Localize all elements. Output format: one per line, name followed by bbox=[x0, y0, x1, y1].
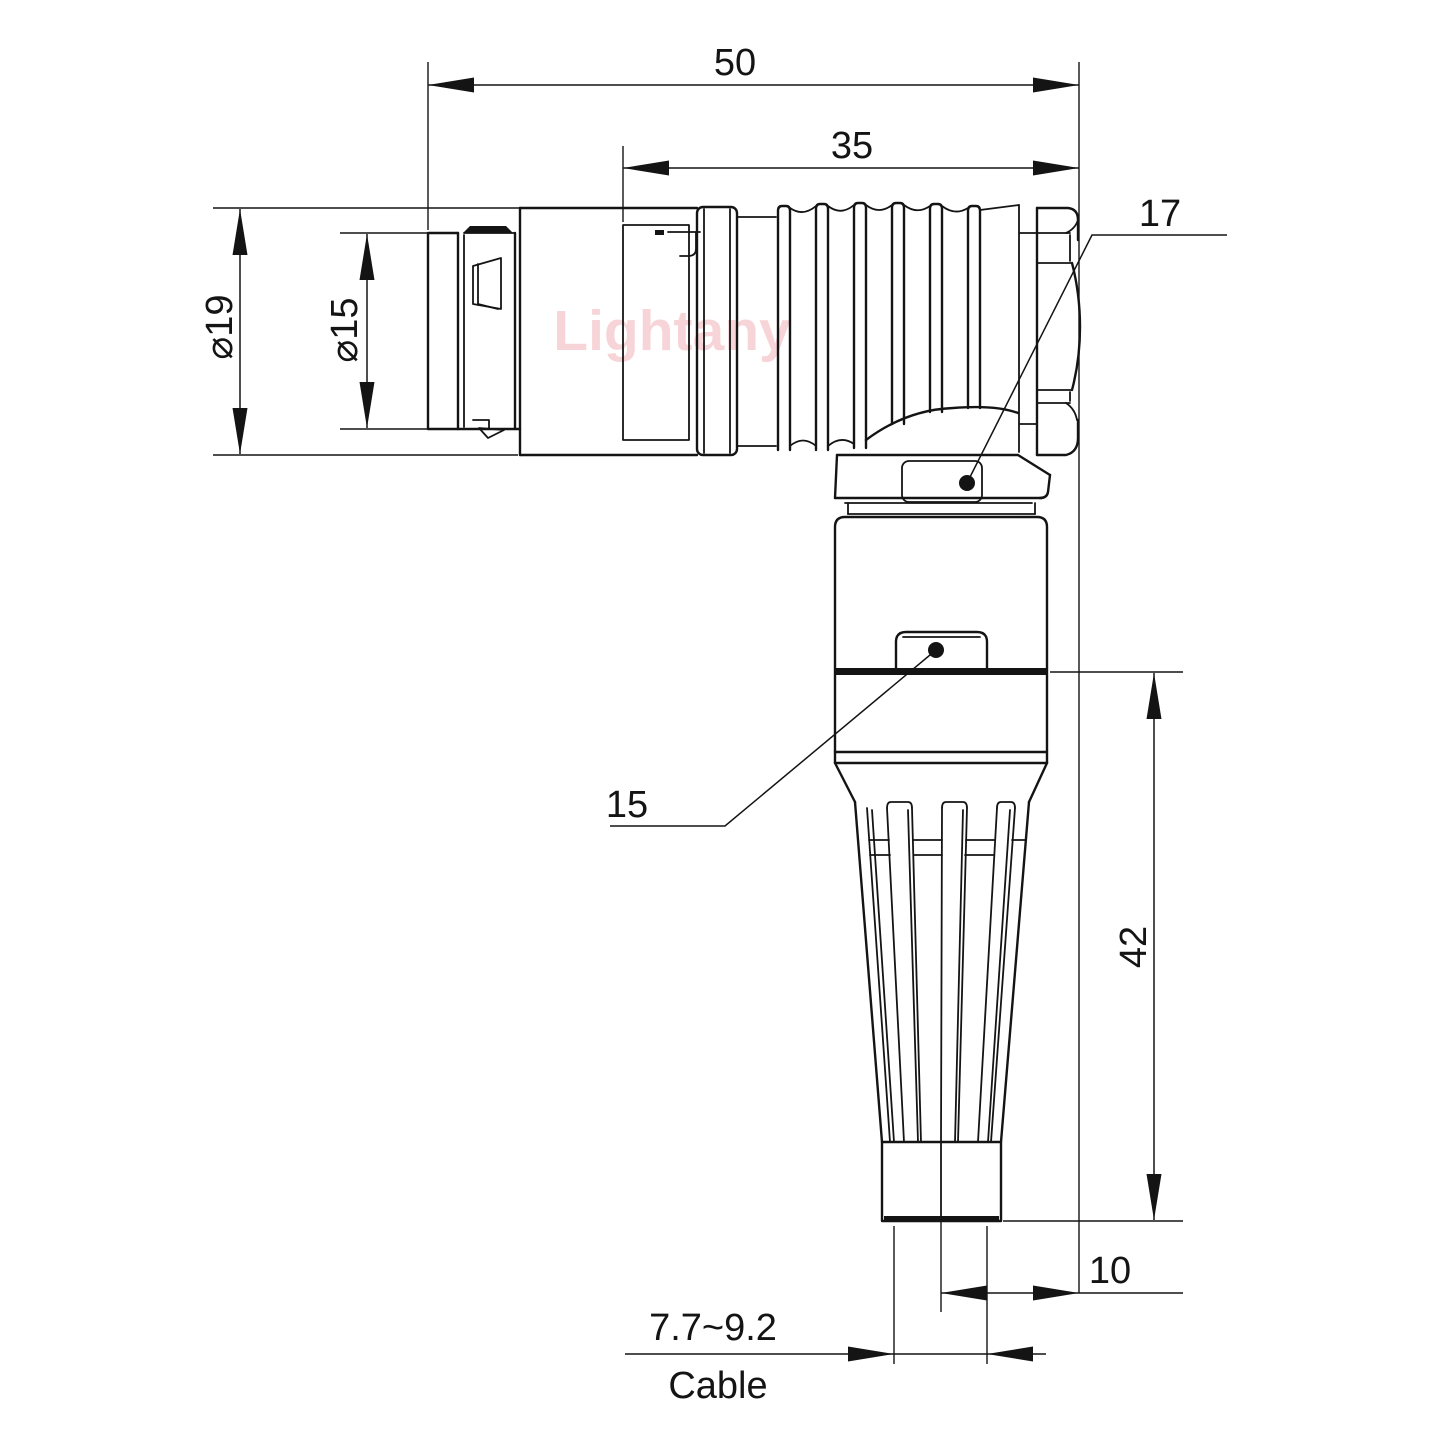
dim-front-diameter: ⌀15 bbox=[324, 234, 375, 428]
key-bump bbox=[463, 226, 513, 233]
leader-dot-body bbox=[928, 642, 944, 658]
body-band bbox=[835, 668, 1048, 675]
leader-nut-size: 17 bbox=[959, 193, 1227, 491]
cable-end-block bbox=[882, 1142, 1001, 1222]
elbow-ferrule bbox=[835, 455, 1050, 514]
watermark: Lightany bbox=[553, 299, 791, 363]
engraved-logo-mark bbox=[655, 230, 700, 256]
dim-outer-diameter-value: ⌀19 bbox=[199, 294, 241, 359]
dim-cable-diameter: 7.7~9.2 Cable bbox=[625, 1307, 1046, 1407]
dim-vertical-length: 42 bbox=[1113, 673, 1162, 1220]
dim-front-diameter-value: ⌀15 bbox=[324, 297, 366, 362]
dim-cable-range-value: 7.7~9.2 bbox=[649, 1307, 777, 1349]
front-barrel bbox=[428, 233, 458, 429]
dim-axis-offset-value: 10 bbox=[1089, 1250, 1131, 1292]
connector-dimension-drawing: Lightany bbox=[0, 0, 1440, 1440]
strain-relief-fingers bbox=[855, 802, 1029, 1142]
leader-nut-size-value: 17 bbox=[1139, 193, 1181, 235]
corrugated-grip bbox=[778, 203, 1037, 452]
dim-outer-diameter: ⌀19 bbox=[199, 209, 248, 454]
dim-rear-length: 35 bbox=[623, 125, 1079, 176]
drawing-page: Lightany bbox=[0, 0, 1440, 1440]
dim-overall-length: 50 bbox=[428, 42, 1079, 93]
dim-vertical-length-value: 42 bbox=[1113, 926, 1155, 968]
cable-label: Cable bbox=[668, 1365, 767, 1407]
dim-overall-length-value: 50 bbox=[714, 42, 756, 84]
vertical-body bbox=[835, 517, 1048, 802]
leader-body-size-value: 15 bbox=[606, 784, 648, 826]
latch-window bbox=[473, 258, 501, 309]
dim-axis-offset: 10 bbox=[941, 1250, 1183, 1301]
leader-dot-nut bbox=[959, 475, 975, 491]
watermark-text: Lightany bbox=[553, 299, 791, 363]
latch-sleeve bbox=[458, 226, 520, 438]
dim-rear-length-value: 35 bbox=[831, 125, 873, 167]
